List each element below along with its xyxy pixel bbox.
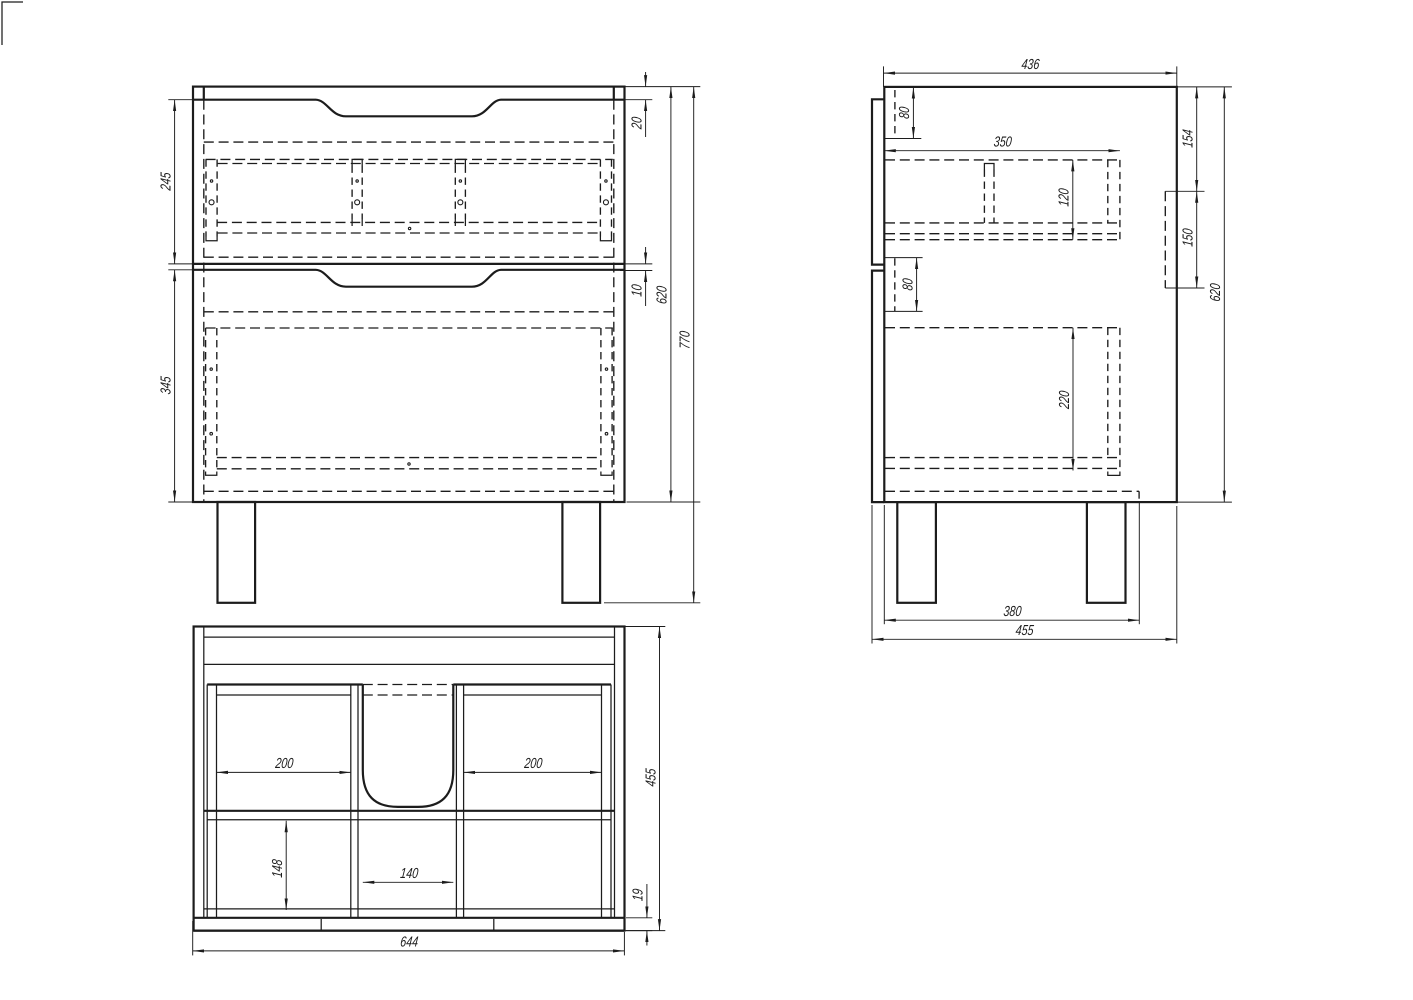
svg-text:120: 120	[1055, 187, 1072, 207]
svg-text:436: 436	[1021, 55, 1041, 72]
svg-text:455: 455	[1015, 622, 1035, 639]
svg-text:245: 245	[157, 171, 174, 192]
svg-text:380: 380	[1003, 602, 1023, 619]
svg-text:80: 80	[896, 106, 913, 120]
svg-text:770: 770	[676, 330, 693, 350]
svg-text:150: 150	[1179, 228, 1196, 248]
svg-text:620: 620	[653, 285, 670, 305]
svg-text:455: 455	[642, 767, 659, 787]
svg-text:154: 154	[1179, 129, 1196, 149]
svg-text:620: 620	[1207, 283, 1224, 303]
svg-text:345: 345	[157, 375, 174, 395]
svg-text:148: 148	[268, 858, 285, 878]
svg-text:80: 80	[899, 278, 916, 292]
svg-text:10: 10	[628, 284, 645, 298]
svg-text:644: 644	[400, 933, 420, 950]
svg-text:140: 140	[400, 865, 420, 882]
svg-text:200: 200	[274, 755, 294, 772]
svg-text:200: 200	[523, 755, 543, 772]
svg-text:220: 220	[1055, 390, 1072, 410]
svg-text:350: 350	[993, 133, 1013, 150]
svg-text:20: 20	[628, 116, 645, 131]
svg-text:19: 19	[629, 888, 646, 902]
